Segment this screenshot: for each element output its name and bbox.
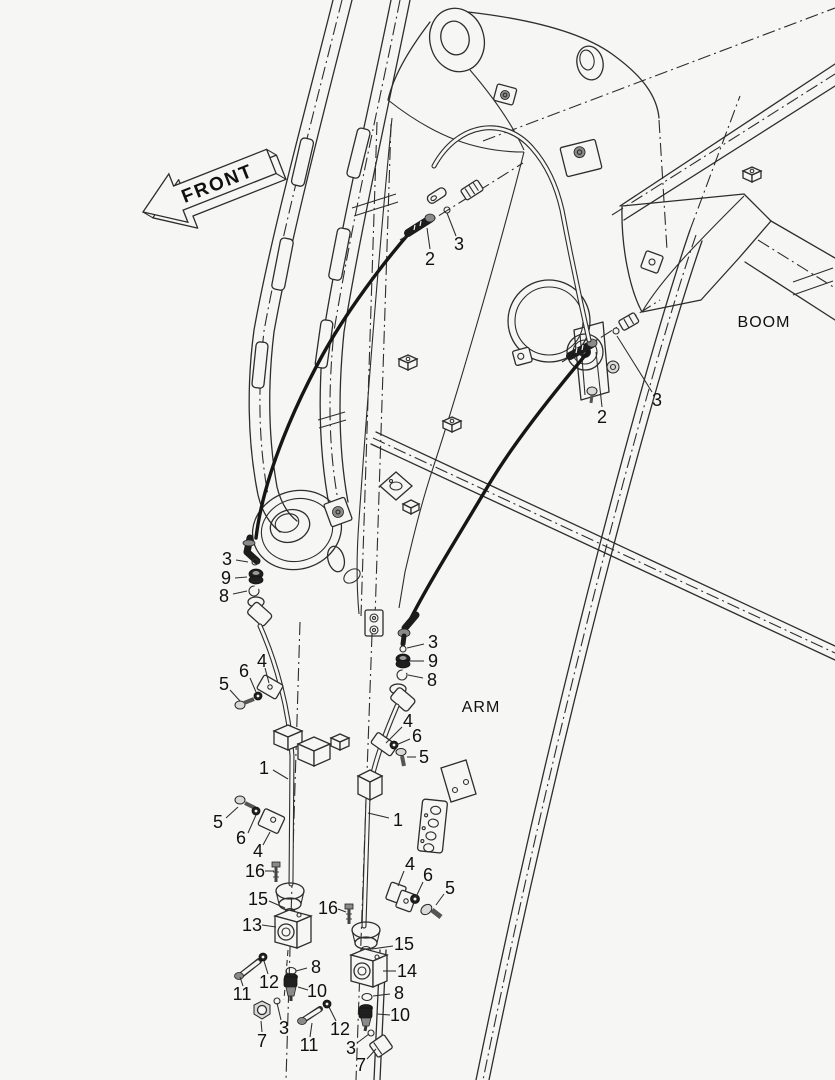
callout-1: 1: [393, 810, 403, 830]
callout-5: 5: [419, 747, 429, 767]
diagram-page: FRONT BOOM ARM 2323398564156416151316111…: [0, 0, 835, 1080]
leader-line: [408, 675, 423, 678]
callout-9: 9: [428, 651, 438, 671]
leader-line: [269, 901, 285, 908]
boom-deck-boss: [743, 167, 761, 182]
front-label: FRONT: [179, 161, 257, 208]
hose-right: [410, 352, 588, 620]
boom-clamp-bracket: [560, 139, 602, 177]
callout-3: 3: [222, 549, 232, 569]
callout-14: 14: [397, 961, 417, 981]
valve-block-13: [275, 910, 311, 948]
callout-5: 5: [219, 674, 229, 694]
arm-label: ARM: [462, 699, 501, 716]
leader-line: [250, 678, 256, 692]
hose-clip: [512, 347, 532, 366]
leader-line: [338, 909, 346, 912]
leader-line: [398, 871, 404, 886]
web-boss: [403, 500, 419, 514]
callout-5: 5: [445, 878, 455, 898]
leader-line: [377, 1014, 390, 1015]
leader-line: [226, 807, 238, 818]
callout-4: 4: [405, 854, 415, 874]
callout-8: 8: [219, 586, 229, 606]
arm-head: [388, 2, 667, 273]
callout-15: 15: [248, 889, 268, 909]
callout-3: 3: [428, 632, 438, 652]
leader-line: [373, 994, 390, 996]
right-pipe-assembly: [298, 615, 477, 1080]
hoses: [256, 128, 589, 620]
left-pipe-assembly: [235, 538, 350, 1080]
callout-7: 7: [257, 1031, 267, 1051]
callout-13: 13: [242, 915, 262, 935]
leader-line: [407, 644, 424, 648]
callout-9: 9: [221, 568, 231, 588]
leader-line: [296, 968, 307, 971]
head-clip: [493, 84, 517, 106]
callout-10: 10: [390, 1005, 410, 1025]
leader-line: [617, 336, 652, 392]
leader-line: [263, 832, 270, 845]
callout-6: 6: [412, 726, 422, 746]
web-boss: [399, 355, 417, 370]
leader-line: [357, 1034, 369, 1043]
web-boss: [443, 417, 461, 432]
callout-3: 3: [454, 234, 464, 254]
front-arrow: FRONT: [133, 135, 290, 245]
callout-6: 6: [239, 661, 249, 681]
callout-10: 10: [307, 981, 327, 1001]
leader-line: [273, 770, 288, 779]
callout-6: 6: [423, 865, 433, 885]
callout-16: 16: [245, 861, 265, 881]
callout-3: 3: [346, 1038, 356, 1058]
callout-3: 3: [652, 390, 662, 410]
arm-front-edge: [476, 96, 740, 1080]
callout-8: 8: [311, 957, 321, 977]
callout-4: 4: [253, 841, 263, 861]
leader-line: [427, 228, 430, 249]
leader-line: [248, 815, 256, 833]
boom-label: BOOM: [738, 314, 791, 331]
leader-line: [233, 591, 247, 594]
callout-6: 6: [236, 828, 246, 848]
callout-2: 2: [597, 407, 607, 427]
leader-line: [262, 925, 276, 927]
diagram-canvas: FRONT BOOM ARM 2323398564156416151316111…: [0, 0, 835, 1080]
callout-8: 8: [394, 983, 404, 1003]
callout-4: 4: [257, 651, 267, 671]
callout-2: 2: [425, 249, 435, 269]
manifold-block: [417, 799, 447, 853]
callout-8: 8: [427, 670, 437, 690]
leader-line: [230, 690, 240, 701]
leader-line: [416, 882, 423, 897]
callout-11: 11: [300, 1035, 319, 1055]
leader-line: [447, 213, 456, 236]
callout-12: 12: [259, 972, 279, 992]
leader-line: [436, 894, 444, 905]
callout-11: 11: [233, 984, 252, 1004]
callout-5: 5: [213, 812, 223, 832]
leader-line: [368, 813, 389, 818]
valve-block-14: [351, 949, 387, 987]
leader-line: [396, 739, 410, 745]
leader-line: [236, 560, 248, 562]
callout-1: 1: [259, 758, 269, 778]
callout-7: 7: [356, 1055, 366, 1075]
callout-15: 15: [394, 934, 414, 954]
callout-12: 12: [330, 1019, 350, 1039]
callout-16: 16: [318, 898, 338, 918]
leader-line: [235, 577, 247, 578]
callout-3: 3: [279, 1018, 289, 1038]
